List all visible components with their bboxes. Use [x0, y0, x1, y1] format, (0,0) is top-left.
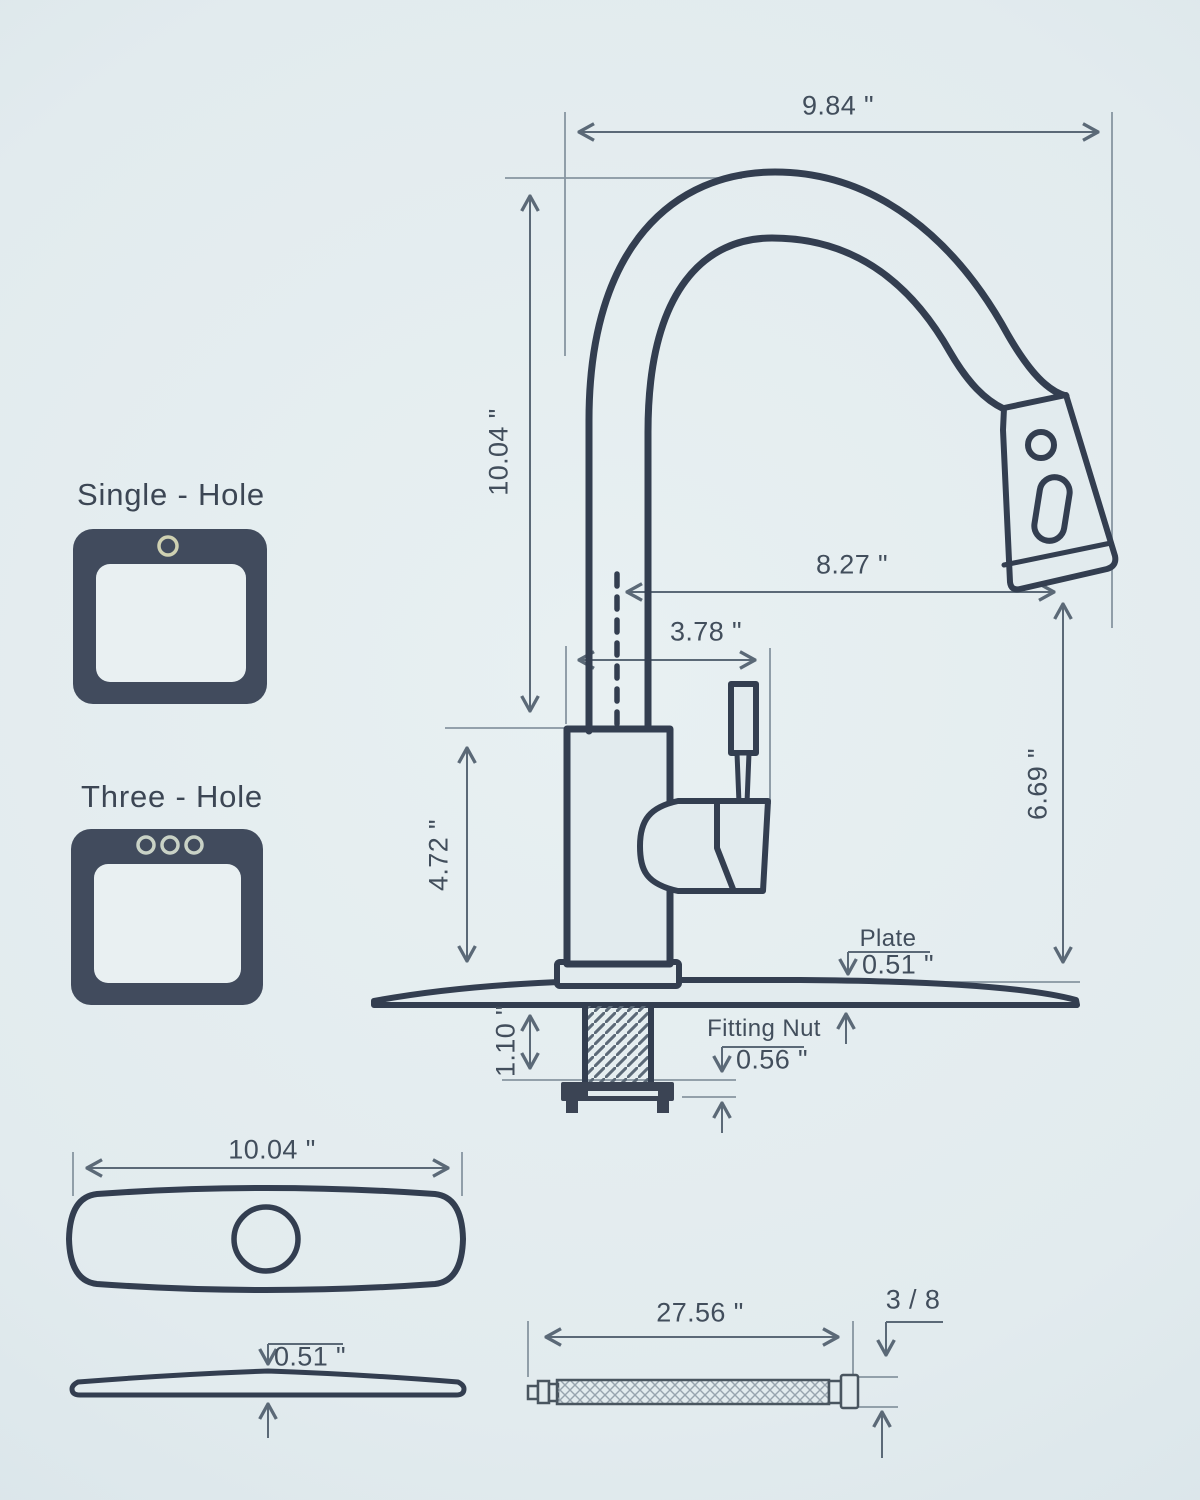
fitting-nut-label: Fitting Nut: [707, 1015, 821, 1043]
dim-hose-length: 27.56 ": [656, 1298, 743, 1329]
single-hole-label: Single - Hole: [77, 477, 265, 513]
dim-outlet-reach: 8.27 ": [816, 550, 888, 581]
shank-and-fitting-nut: [561, 1006, 674, 1113]
dim-spout-reach-top: 9.84 ": [802, 91, 874, 122]
dim-counter-thickness: 1.10 ": [491, 1005, 522, 1077]
dim-plate-side-thickness: 0.51 ": [274, 1342, 346, 1373]
dim-spout-height: 10.04 ": [484, 408, 515, 495]
plate-side-view: [72, 1371, 464, 1395]
faucet-drawing: [374, 172, 1115, 1113]
dim-fitting-nut-height: 0.56 ": [736, 1045, 808, 1076]
dim-body-height: 4.72 ": [424, 819, 455, 891]
three-hole-label: Three - Hole: [81, 779, 263, 815]
dim-neck-offset: 3.78 ": [670, 617, 742, 648]
dim-hose-connector: 3 / 8: [886, 1285, 941, 1316]
dim-plate-thickness: 0.51 ": [862, 950, 934, 981]
supply-hose: [528, 1375, 858, 1408]
dim-outlet-clearance: 6.69 ": [1023, 748, 1054, 820]
single-hole-icon: [73, 529, 267, 704]
sprayer-head: [1003, 395, 1115, 589]
deck-plate: [374, 980, 1077, 1005]
faucet-dimension-diagram: 9.84 " 10.04 " 8.27 " 3.78 " 4.72 " 6.69…: [0, 0, 1200, 1500]
plate-top-view: [69, 1188, 463, 1290]
dim-plate-width: 10.04 ": [228, 1135, 315, 1166]
three-hole-icon: [71, 829, 263, 1005]
diagram-linework: [0, 0, 1200, 1500]
